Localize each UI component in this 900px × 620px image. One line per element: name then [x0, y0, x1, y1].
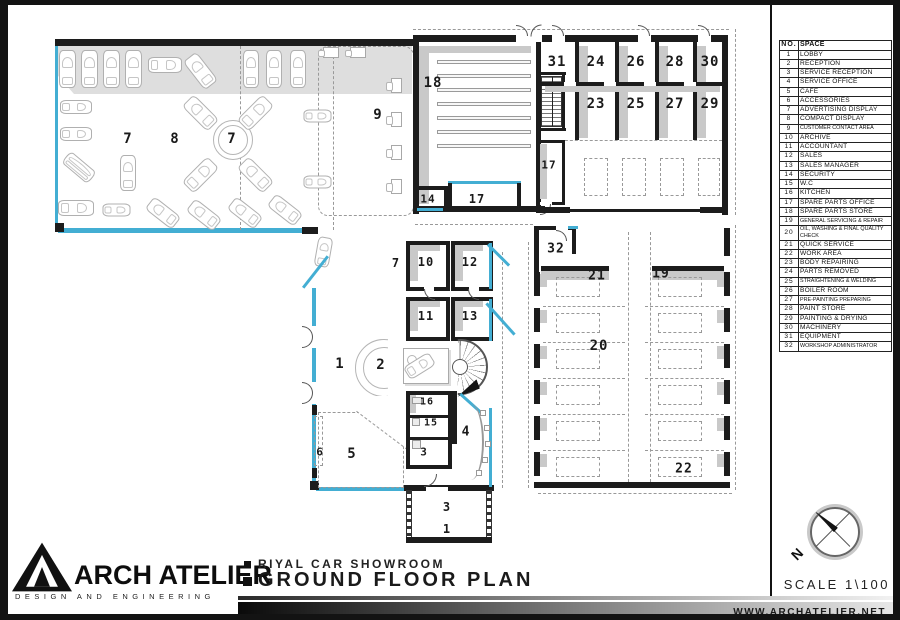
- drawing-title: GROUND FLOOR PLAN: [258, 569, 533, 592]
- wall: [452, 391, 457, 444]
- hatched-wall: [486, 490, 492, 540]
- sheet: 7879183124262830232527291714173221192022…: [0, 0, 900, 620]
- glass-wall: [58, 228, 304, 233]
- car-icon: [120, 155, 136, 191]
- legend-cell: 10: [780, 133, 799, 142]
- chair-icon: [476, 470, 482, 476]
- car-icon: [81, 50, 98, 88]
- wall: [724, 452, 730, 476]
- legend-cell: CAFE: [799, 87, 892, 96]
- car-icon: [243, 50, 259, 88]
- car-icon: [237, 156, 274, 193]
- dashed-line: [645, 342, 724, 343]
- wall-shadow: [540, 418, 547, 431]
- door-opening: [426, 487, 448, 491]
- legend-cell: SALES: [799, 152, 892, 161]
- legend-cell: PRE-PAINTING PREPARING: [799, 296, 892, 305]
- legend-row: 18SPARE PARTS STORE: [780, 207, 892, 216]
- chair-icon: [484, 425, 490, 431]
- wall: [517, 183, 521, 209]
- room-number-label: 17: [469, 192, 485, 206]
- dashed-zone: [622, 158, 646, 196]
- dashed-zone: [660, 158, 684, 196]
- legend-cell: 7: [780, 106, 799, 115]
- room-number-label: 9: [373, 107, 382, 123]
- room-number-label: 28: [666, 54, 685, 70]
- legend-row: 3SERVICE RECEPTION: [780, 69, 892, 78]
- wall: [55, 39, 417, 46]
- car-icon: [148, 57, 182, 73]
- bullet-icon: [244, 561, 251, 568]
- car-icon: [58, 200, 94, 216]
- room-number-label: 30: [701, 54, 720, 70]
- legend-cell: CUSTOMER CONTACT AREA: [799, 124, 892, 133]
- wall: [406, 537, 492, 543]
- legend-row: 27PRE-PAINTING PREPARING: [780, 296, 892, 305]
- legend-cell: RECEPTION: [799, 59, 892, 68]
- glass-wall: [448, 181, 521, 184]
- dashed-zone: [658, 421, 702, 441]
- dashed-line: [413, 29, 729, 30]
- legend-row: 20OIL, WASHING & FINAL QUALITY CHECK: [780, 226, 892, 241]
- car-icon: [61, 151, 97, 184]
- legend-cell: SERVICE OFFICE: [799, 78, 892, 87]
- legend-row: 29PAINTING & DRYING: [780, 314, 892, 323]
- car-icon: [237, 94, 274, 131]
- sheet-border: [893, 0, 900, 620]
- legend-cell: ARCHIVE: [799, 133, 892, 142]
- room-number-label: 1: [335, 356, 344, 372]
- door-opening: [552, 35, 565, 42]
- wall-shadow: [717, 274, 724, 287]
- legend-cell: 28: [780, 305, 799, 314]
- title-block-divider: [770, 5, 772, 597]
- legend-cell: ACCESSORIES: [799, 96, 892, 105]
- room-number-label: 14: [420, 193, 435, 206]
- desk-icon: [391, 179, 402, 194]
- room-number-label: 17: [541, 159, 556, 172]
- door-arc-icon: [638, 25, 650, 36]
- dashed-line: [645, 306, 724, 307]
- wall: [572, 226, 576, 254]
- legend-cell: MACHINERY: [799, 323, 892, 332]
- room-number-label: 3: [443, 500, 451, 514]
- legend-row: 6ACCESSORIES: [780, 96, 892, 105]
- wall-shadow: [540, 310, 547, 323]
- dashed-line: [543, 378, 625, 379]
- legend: NO. SPACE 1LOBBY2RECEPTION3SERVICE RECEP…: [779, 40, 892, 352]
- legend-row: 30MACHINERY: [780, 323, 892, 332]
- wall: [722, 35, 728, 215]
- legend-row: 2RECEPTION: [780, 59, 892, 68]
- room-number-label: 8: [170, 131, 179, 147]
- dashed-line: [415, 224, 533, 225]
- dashed-line: [735, 29, 736, 215]
- legend-table: NO. SPACE 1LOBBY2RECEPTION3SERVICE RECEP…: [779, 40, 892, 352]
- wall: [446, 297, 450, 341]
- legend-cell: BODY REPAIRING: [799, 259, 892, 268]
- legend-row: 8COMPACT DISPLAY: [780, 115, 892, 124]
- wall: [700, 207, 728, 213]
- legend-cell: LOBBY: [799, 50, 892, 59]
- wall: [448, 183, 452, 209]
- dashed-line: [502, 252, 503, 488]
- wall-shadow: [455, 245, 483, 251]
- legend-cell: PAINT STORE: [799, 305, 892, 314]
- chair-icon: [482, 457, 488, 463]
- room-number-label: 13: [462, 309, 478, 323]
- room-number-label: 12: [462, 255, 478, 269]
- room-number-label: 7: [227, 131, 236, 147]
- legend-row: 12SALES: [780, 152, 892, 161]
- car-icon: [186, 198, 223, 232]
- legend-cell: 1: [780, 50, 799, 59]
- wall: [724, 228, 730, 256]
- room-number-label: 5: [347, 446, 356, 462]
- legend-cell: 2: [780, 59, 799, 68]
- legend-cell: QUICK SERVICE: [799, 240, 892, 249]
- legend-cell: 32: [780, 342, 799, 351]
- wall: [724, 344, 730, 368]
- sheet-border: [0, 0, 8, 620]
- wall: [446, 241, 450, 291]
- legend-cell: 23: [780, 259, 799, 268]
- legend-row: 10ARCHIVE: [780, 133, 892, 142]
- wall: [724, 308, 730, 332]
- room-number-label: 7: [392, 256, 400, 270]
- wall: [562, 140, 565, 205]
- legend-cell: 27: [780, 296, 799, 305]
- wall-shadow: [540, 144, 547, 199]
- wall: [724, 380, 730, 404]
- sheet-border: [0, 0, 900, 5]
- room-number-label: 32: [547, 242, 565, 257]
- glass-wall: [489, 408, 492, 487]
- legend-cell: 16: [780, 189, 799, 198]
- room-number-label: 15: [424, 418, 438, 429]
- wall-shadow: [419, 46, 429, 204]
- legend-cell: 6: [780, 96, 799, 105]
- wall: [434, 287, 450, 291]
- room-number-label: 19: [652, 267, 670, 282]
- room-number-label: 21: [588, 269, 606, 284]
- dashed-line: [538, 493, 732, 494]
- dashed-line: [545, 140, 722, 141]
- legend-cell: EQUIPMENT: [799, 333, 892, 342]
- legend-row: 24PARTS REMOVED: [780, 268, 892, 277]
- shelf-unit: [437, 130, 531, 134]
- legend-cell: 20: [780, 226, 799, 241]
- door-arc-icon: [556, 230, 567, 241]
- legend-cell: KITCHEN: [799, 189, 892, 198]
- wall-shadow: [419, 46, 531, 53]
- legend-cell: 26: [780, 286, 799, 295]
- gradient-bar: [238, 596, 894, 600]
- legend-cell: GENERAL SERVICING & REPAIR: [799, 216, 892, 225]
- legend-cell: COMPACT DISPLAY: [799, 115, 892, 124]
- car-icon: [103, 50, 120, 88]
- arch-atelier-logo-icon: [12, 542, 72, 592]
- north-label: N: [788, 545, 806, 563]
- legend-row: 5CAFE: [780, 87, 892, 96]
- legend-cell: 4: [780, 78, 799, 87]
- wall-shadow: [540, 454, 547, 467]
- door-opening: [638, 35, 651, 42]
- legend-row: 19GENERAL SERVICING & REPAIR: [780, 216, 892, 225]
- legend-cell: 13: [780, 161, 799, 170]
- car-icon: [290, 50, 306, 88]
- legend-cell: PAINTING & DRYING: [799, 314, 892, 323]
- room-number-label: 24: [587, 54, 606, 70]
- wall: [406, 337, 450, 341]
- legend-cell: OIL, WASHING & FINAL QUALITY CHECK: [799, 226, 892, 241]
- room-number-label: 18: [424, 75, 443, 91]
- room-number-label: 7: [123, 131, 132, 147]
- legend-cell: 15: [780, 180, 799, 189]
- room-number-label: 26: [627, 54, 646, 70]
- car-icon: [60, 100, 92, 114]
- room-number-label: 2: [376, 357, 385, 373]
- legend-cell: PARTS REMOVED: [799, 268, 892, 277]
- wall-shadow: [540, 346, 547, 359]
- wall: [534, 226, 539, 274]
- wall: [406, 465, 452, 469]
- wall-shadow: [717, 418, 724, 431]
- wall: [406, 287, 424, 291]
- dashed-zone: [556, 457, 600, 477]
- fixture-icon: [412, 418, 420, 426]
- room-number-label: 16: [420, 397, 434, 408]
- wall: [534, 482, 730, 488]
- chair-icon: [485, 441, 491, 447]
- legend-cell: 9: [780, 124, 799, 133]
- car-icon: [304, 110, 332, 123]
- wall-shadow: [545, 86, 720, 92]
- legend-cell: 8: [780, 115, 799, 124]
- wall: [312, 405, 317, 415]
- room-number-label: 20: [590, 338, 609, 354]
- room-number-label: 27: [666, 96, 685, 112]
- legend-cell: WORKSHOP ADMINISTRATOR: [799, 342, 892, 351]
- wall-shadow: [410, 245, 440, 251]
- dashed-line: [543, 414, 625, 415]
- wall-shadow: [717, 382, 724, 395]
- legend-cell: SPARE PARTS OFFICE: [799, 198, 892, 207]
- door-arc-icon: [552, 25, 564, 36]
- room-number-label: 31: [548, 54, 567, 70]
- wall-shadow: [717, 310, 724, 323]
- wall-shadow: [540, 274, 547, 287]
- legend-row: 14SECURITY: [780, 170, 892, 179]
- dashed-zone: [658, 313, 702, 333]
- room-number-label: 29: [701, 96, 720, 112]
- wall-shadow: [540, 382, 547, 395]
- shelf-unit: [437, 88, 531, 92]
- dashed-line: [628, 232, 629, 482]
- legend-cell: ADVERTISING DISPLAY: [799, 106, 892, 115]
- dashed-line: [645, 378, 724, 379]
- car-icon: [266, 50, 282, 88]
- dashed-line: [528, 242, 529, 488]
- wall: [312, 468, 317, 478]
- car-icon: [125, 50, 142, 88]
- car-icon: [60, 127, 92, 141]
- legend-cell: SERVICE RECEPTION: [799, 69, 892, 78]
- room-number-label: 22: [675, 462, 693, 477]
- legend-cell: STRAIGHTENING & WELDING: [799, 277, 892, 286]
- dashed-line: [645, 414, 724, 415]
- dashed-zone: [314, 416, 323, 466]
- wall: [451, 287, 469, 291]
- legend-row: 15W.C: [780, 180, 892, 189]
- room-number-label: 10: [418, 255, 434, 269]
- legend-cell: 29: [780, 314, 799, 323]
- door-arc-icon: [531, 25, 542, 37]
- wall: [724, 416, 730, 440]
- legend-row: 16KITCHEN: [780, 189, 892, 198]
- car-icon: [304, 176, 332, 189]
- dashed-line: [543, 306, 625, 307]
- legend-cell: WORK AREA: [799, 249, 892, 258]
- car-icon: [182, 156, 219, 193]
- room-number-label: 25: [627, 96, 646, 112]
- legend-row: 4SERVICE OFFICE: [780, 78, 892, 87]
- shelf-unit: [437, 74, 531, 78]
- legend-cell: 24: [780, 268, 799, 277]
- legend-cell: 11: [780, 143, 799, 152]
- legend-row: 23BODY REPAIRING: [780, 259, 892, 268]
- wall: [55, 223, 64, 232]
- legend-row: 7ADVERTISING DISPLAY: [780, 106, 892, 115]
- spiral-stair-hub: [452, 359, 468, 375]
- wall: [404, 485, 494, 491]
- legend-cell: BOILER ROOM: [799, 286, 892, 295]
- legend-cell: 22: [780, 249, 799, 258]
- legend-cell: SECURITY: [799, 170, 892, 179]
- room-number-label: 1: [443, 522, 451, 536]
- room-number-label: 6: [316, 446, 324, 459]
- dashed-line: [645, 450, 724, 451]
- shelf-unit: [437, 144, 531, 148]
- legend-row: 9CUSTOMER CONTACT AREA: [780, 124, 892, 133]
- wall-shadow: [717, 454, 724, 467]
- dashed-zone: [658, 349, 702, 369]
- glass-wall: [417, 208, 443, 211]
- dashed-line: [650, 232, 651, 482]
- wall: [536, 140, 565, 143]
- legend-cell: ACCOUNTANT: [799, 143, 892, 152]
- legend-cell: 19: [780, 216, 799, 225]
- room-number-label: 3: [420, 446, 428, 459]
- car-icon: [182, 94, 219, 131]
- legend-row: 28PAINT STORE: [780, 305, 892, 314]
- legend-cell: 21: [780, 240, 799, 249]
- desk-icon: [391, 145, 402, 160]
- legend-row: 31EQUIPMENT: [780, 333, 892, 342]
- car-icon: [227, 196, 264, 230]
- sheet-border: [0, 614, 900, 620]
- dashed-zone: [556, 313, 600, 333]
- firm-name: ARCH ATELIER: [74, 560, 272, 591]
- car-icon: [267, 193, 304, 227]
- shelf-unit: [437, 116, 531, 120]
- legend-row: 32WORKSHOP ADMINISTRATOR: [780, 342, 892, 351]
- legend-row: 1LOBBY: [780, 50, 892, 59]
- wall: [536, 207, 570, 213]
- door-arc-icon: [516, 25, 528, 36]
- shelf-unit: [437, 60, 531, 64]
- door-opening: [698, 35, 711, 42]
- legend-cell: 14: [780, 170, 799, 179]
- legend-cell: 5: [780, 87, 799, 96]
- wall: [724, 272, 730, 296]
- car-icon: [103, 204, 131, 217]
- hatched-wall: [406, 490, 412, 540]
- room-number-label: 11: [418, 309, 434, 323]
- wall-shadow: [717, 346, 724, 359]
- legend-cell: 12: [780, 152, 799, 161]
- legend-header-space: SPACE: [799, 41, 892, 51]
- legend-row: 21QUICK SERVICE: [780, 240, 892, 249]
- dashed-line: [735, 225, 736, 490]
- wall: [413, 35, 728, 42]
- wall: [302, 227, 318, 234]
- legend-cell: 3: [780, 69, 799, 78]
- legend-cell: SALES MANAGER: [799, 161, 892, 170]
- legend-row: 22WORK AREA: [780, 249, 892, 258]
- room-number-label: 4: [462, 425, 471, 440]
- dashed-line: [543, 450, 625, 451]
- dashed-line: [543, 342, 625, 343]
- room-number-label: 23: [587, 96, 606, 112]
- legend-row: 13SALES MANAGER: [780, 161, 892, 170]
- shelf-unit: [437, 102, 531, 106]
- legend-header-no: NO.: [780, 41, 799, 51]
- wall: [451, 337, 493, 341]
- car-icon: [145, 196, 182, 230]
- desk-icon: [350, 47, 366, 58]
- legend-row: 26BOILER ROOM: [780, 286, 892, 295]
- door-arc-icon: [698, 25, 710, 36]
- legend-cell: SPARE PARTS STORE: [799, 207, 892, 216]
- dashed-zone: [584, 158, 608, 196]
- legend-cell: 30: [780, 323, 799, 332]
- legend-cell: 25: [780, 277, 799, 286]
- legend-cell: W.C: [799, 180, 892, 189]
- legend-row: 11ACCOUNTANT: [780, 143, 892, 152]
- legend-row: 25STRAIGHTENING & WELDING: [780, 277, 892, 286]
- wall-shadow: [410, 301, 440, 307]
- dashed-zone: [556, 421, 600, 441]
- dashed-zone: [698, 158, 720, 196]
- legend-row: 17SPARE PARTS OFFICE: [780, 198, 892, 207]
- dashed-zone: [658, 385, 702, 405]
- desk-icon: [323, 47, 339, 58]
- scale-label: SCALE 1\100: [700, 577, 890, 592]
- desk-icon: [391, 78, 402, 93]
- legend-cell: 31: [780, 333, 799, 342]
- bullet-icon: [243, 577, 252, 586]
- legend-cell: 17: [780, 198, 799, 207]
- firm-tagline: DESIGN AND ENGINEERING: [15, 592, 215, 601]
- dashed-zone: [556, 385, 600, 405]
- desk-icon: [391, 112, 402, 127]
- chair-icon: [480, 410, 486, 416]
- legend-cell: 18: [780, 207, 799, 216]
- car-icon: [59, 50, 76, 88]
- wall-shadow: [455, 301, 483, 307]
